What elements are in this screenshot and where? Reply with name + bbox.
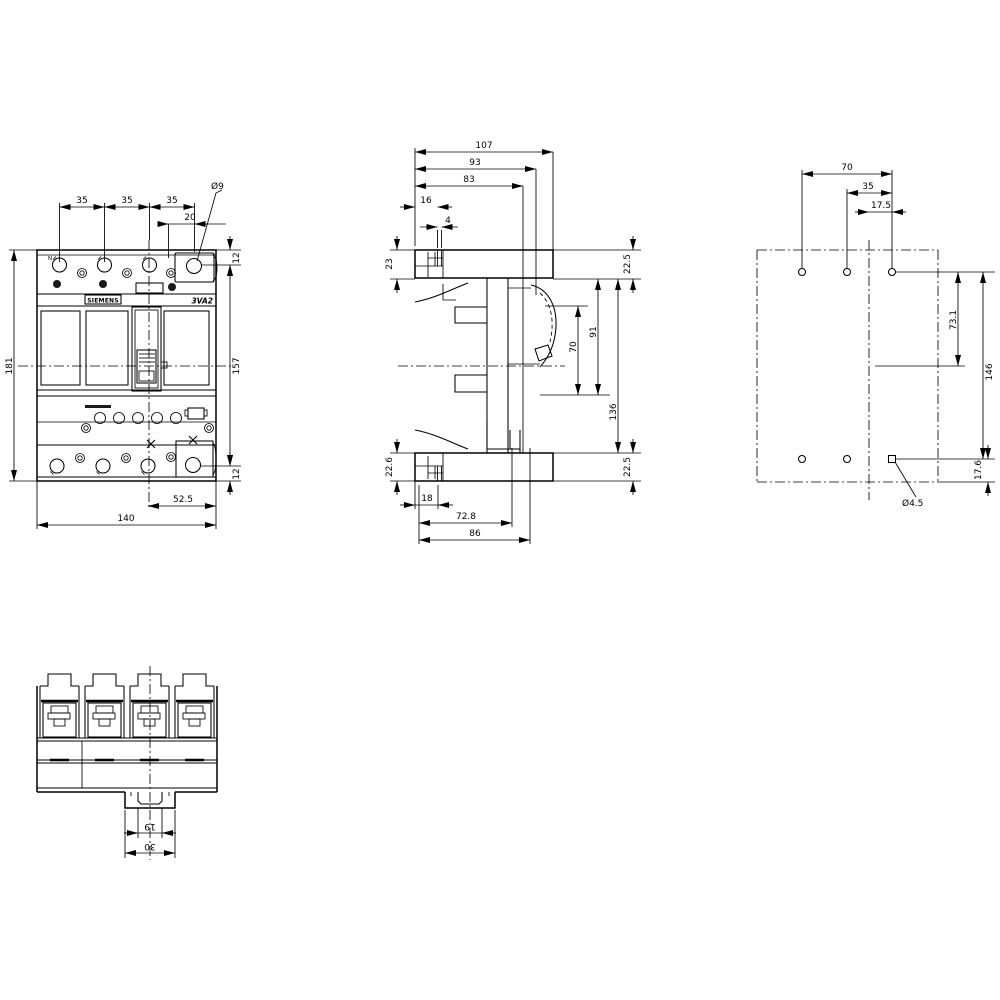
dim-depth-93: 93 (469, 158, 480, 168)
dim-row-span: 146 (985, 363, 995, 380)
dim-center-to-edge: 52.5 (173, 495, 193, 505)
dim-foot-inner: 19 (144, 821, 156, 831)
side-view: 107 93 83 16 4 23 22.6 (385, 141, 641, 544)
product-label: 3VA2 (191, 297, 213, 306)
side-view-dimensions: 107 93 83 16 4 23 22.6 (385, 141, 641, 544)
drilling-plan-dimensions: 70 35 17.5 73.1 146 17.6 Ø4.5 (802, 163, 995, 509)
dim-slot-width: 4 (445, 216, 451, 226)
dim-depth-83: 83 (463, 175, 474, 185)
bottom-view: 19 30 (37, 666, 217, 860)
brand-logo: SIEMENS (85, 295, 121, 305)
dim-top-offset: 12 (232, 252, 242, 263)
drilling-plan: 70 35 17.5 73.1 146 17.6 Ø4.5 (757, 163, 995, 509)
dim-row-offset: 73.1 (949, 310, 959, 330)
dim-center-offset: 17.5 (871, 201, 891, 211)
dim-top-left: 23 (385, 258, 395, 269)
front-view-outline (18, 240, 232, 508)
dim-terminal-offset: 20 (184, 213, 196, 223)
dim-bottom-cover: 22.5 (623, 457, 633, 477)
dim-hole-dia: Ø4.5 (902, 498, 923, 509)
dim-slot-offset: 16 (420, 196, 432, 206)
dim-bottom-left: 22.6 (385, 457, 395, 477)
bottom-view-outline (37, 666, 217, 860)
dim-pole-pitch-2: 35 (121, 196, 132, 206)
front-view: N SIEMENS 3VA2 35 35 35 20 Ø9 (5, 181, 242, 529)
drilling-plan-outline (757, 240, 938, 500)
dim-bottom-offset: 12 (232, 468, 242, 479)
dim-inner-height: 157 (232, 357, 242, 374)
dim-top-cover: 22.5 (623, 254, 633, 274)
dim-body-height: 136 (609, 403, 619, 420)
dim-bottom-offset-drill: 17.6 (974, 460, 984, 480)
dim-handle-window: 70 (569, 341, 579, 353)
dim-total-depth: 107 (475, 141, 492, 151)
dim-rail-offset: 18 (421, 494, 433, 504)
dim-hole-half-span: 35 (862, 182, 873, 192)
dim-handle-zone: 91 (589, 326, 599, 337)
dim-total-width: 140 (117, 514, 134, 524)
dimension-drawing: N SIEMENS 3VA2 35 35 35 20 Ø9 (0, 0, 1000, 1000)
dim-foot-outer: 30 (144, 841, 156, 851)
brand-label: SIEMENS (87, 298, 118, 305)
dim-hole-span: 70 (841, 163, 853, 173)
section-marks (147, 436, 197, 448)
dim-pole-pitch-1: 35 (76, 196, 87, 206)
dim-depth-72-8: 72.8 (456, 512, 476, 522)
neutral-pole-label: N (48, 256, 52, 262)
dim-total-height: 181 (5, 357, 15, 374)
dim-terminal-hole-dia: Ø9 (211, 181, 224, 192)
dim-pole-pitch-3: 35 (166, 196, 177, 206)
dim-depth-86: 86 (469, 529, 481, 539)
